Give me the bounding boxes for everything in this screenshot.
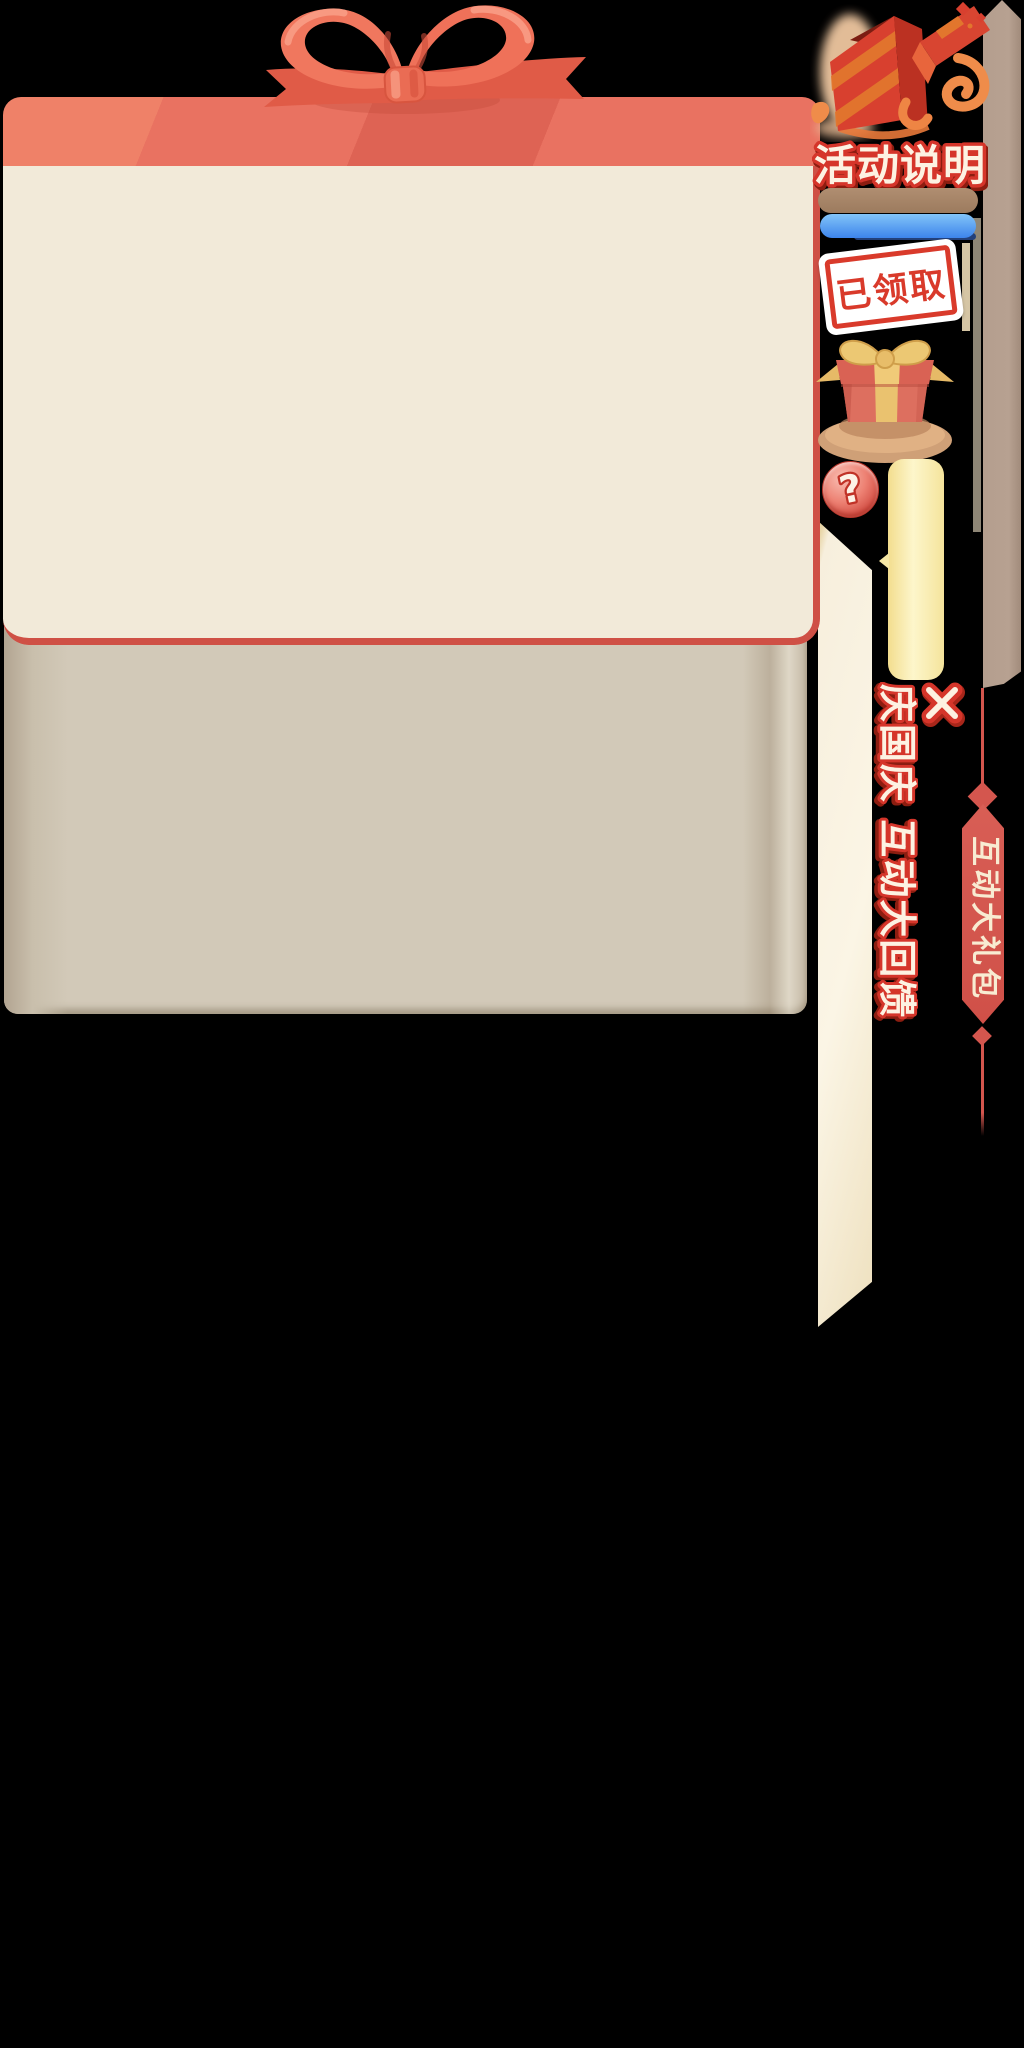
open-gift-icon [810,0,992,142]
help-button[interactable]: ? [822,461,879,518]
banner-cord-bottom [981,1043,984,1136]
svg-text:活动说明: 活动说明 [814,141,986,190]
svg-text:互动大礼包: 互动大礼包 [967,836,1002,1001]
page-curl-strip [818,521,872,1327]
event-slogan: 庆国庆 互动大回馈 庆国庆 互动大回馈 [872,682,918,1042]
thread-line-tan [962,243,970,331]
svg-text:庆国庆 互动大回馈: 庆国庆 互动大回馈 [875,684,918,1019]
progress-bar-blue [820,214,976,238]
banner-cord-top [981,688,984,784]
gift-panel [3,97,820,645]
scrollbar-thumb[interactable] [888,459,944,680]
side-banner-label: 互动大礼包 [962,804,1004,1024]
claimed-stamp-label: 已领取 [824,245,958,330]
progress-bar-brown [818,188,978,213]
gift-box-icon[interactable] [812,318,962,466]
scroll-background-panel [4,620,807,1014]
question-icon: ? [823,462,878,517]
gift-panel-body [3,166,820,645]
thread-line-gray [973,218,981,532]
svg-text:?: ? [835,465,866,513]
event-screen: 活动说明 活动说明 已领取 ? [0,0,1024,2048]
activity-rules-heading: 活动说明 活动说明 [812,134,988,192]
close-icon[interactable] [918,679,966,727]
ribbon-bow-icon [252,0,596,122]
